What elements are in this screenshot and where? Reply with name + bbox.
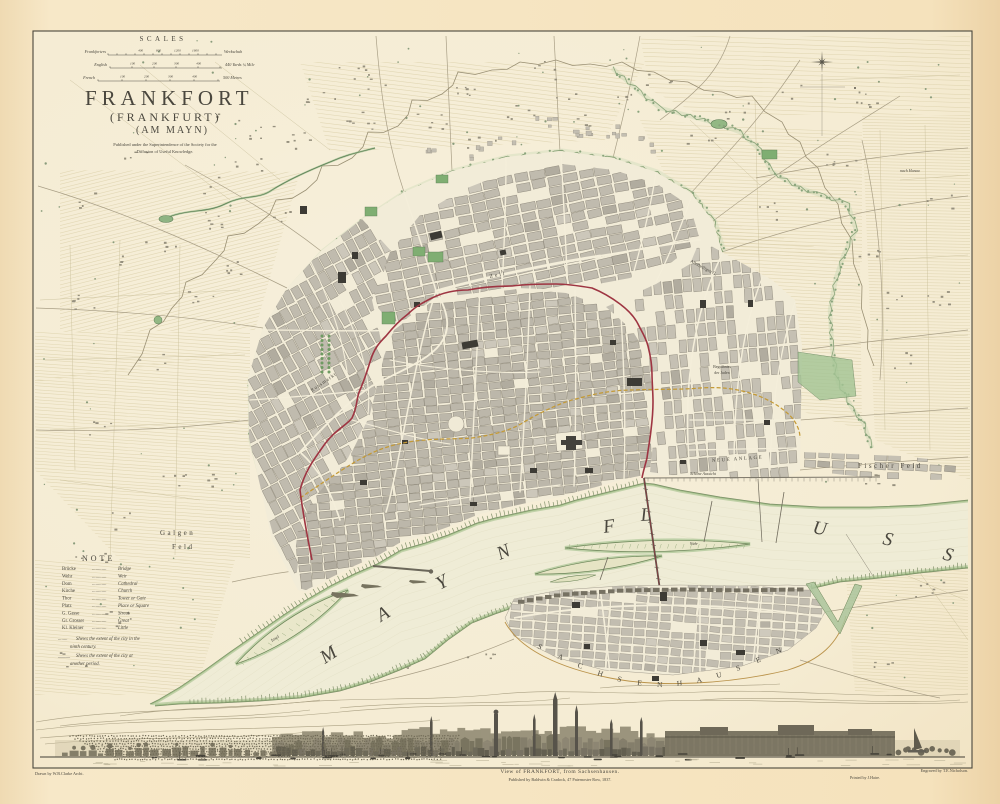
svg-text:............: ............: [92, 626, 106, 631]
svg-text:Street: Street: [118, 611, 130, 616]
svg-text:............: ............: [92, 589, 106, 594]
svg-text:Kl. Kleiner: Kl. Kleiner: [62, 626, 84, 631]
svg-text:Published under the Superinten: Published under the Superintendence of t…: [113, 142, 216, 147]
svg-text:Place or Square: Place or Square: [117, 604, 150, 609]
svg-text:Wehr: Wehr: [62, 574, 73, 579]
svg-text:Kirche: Kirche: [62, 589, 75, 594]
svg-text:Diffusion of Useful Knowledge.: Diffusion of Useful Knowledge.: [137, 149, 194, 154]
svg-text:440 Yards ¼ Mile: 440 Yards ¼ Mile: [225, 62, 255, 67]
svg-text:Shews the extent of the city a: Shews the extent of the city at: [76, 654, 133, 659]
svg-text:Schöne Aussicht: Schöne Aussicht: [690, 471, 717, 476]
svg-text:Gr. Grosser: Gr. Grosser: [62, 619, 85, 624]
svg-text:Thor: Thor: [62, 597, 72, 602]
svg-text:Frankforters: Frankforters: [84, 49, 107, 54]
svg-text:400: 400: [196, 62, 201, 66]
svg-text:Begräbniss: Begräbniss: [713, 364, 731, 369]
svg-text:............: ............: [92, 604, 106, 609]
svg-text:English: English: [93, 62, 107, 67]
svg-text:Cathedral: Cathedral: [118, 582, 138, 587]
svg-text:Shews the extent of the city i: Shews the extent of the city in the: [76, 637, 141, 642]
svg-text:Great: Great: [118, 619, 130, 624]
svg-text:............: ............: [92, 611, 106, 616]
svg-text:............: ............: [92, 582, 106, 587]
svg-text:Tower or Gate: Tower or Gate: [118, 597, 147, 602]
svg-text:............: ............: [92, 574, 106, 579]
svg-text:Brücke: Brücke: [62, 567, 76, 572]
svg-text:............: ............: [92, 597, 106, 602]
svg-text:400: 400: [138, 49, 143, 53]
svg-text:(AM MAYN): (AM MAYN): [136, 125, 209, 136]
svg-text:_____: _____: [57, 654, 71, 659]
svg-text:300: 300: [174, 62, 179, 66]
svg-text:Platz: Platz: [62, 604, 72, 609]
svg-text:ninth century.: ninth century.: [70, 645, 96, 650]
svg-text:SCALES: SCALES: [139, 35, 186, 43]
svg-text:Bridge: Bridge: [118, 567, 132, 572]
svg-text:FRANKFORT: FRANKFORT: [85, 86, 254, 110]
svg-text:200: 200: [152, 62, 157, 66]
svg-text:400: 400: [192, 75, 197, 79]
svg-text:L: L: [639, 504, 652, 526]
svg-text:Wehr: Wehr: [690, 542, 698, 546]
svg-text:500 Metres: 500 Metres: [223, 75, 242, 80]
svg-text:............: ............: [92, 567, 106, 572]
svg-text:Weir: Weir: [118, 574, 127, 579]
svg-text:800: 800: [156, 49, 161, 53]
svg-text:100: 100: [120, 75, 125, 79]
svg-text:Church: Church: [118, 589, 133, 594]
svg-text:1600: 1600: [192, 49, 199, 53]
svg-text:NOTE: NOTE: [82, 554, 115, 563]
svg-text:200: 200: [144, 75, 149, 79]
svg-text:............: ............: [92, 619, 106, 624]
svg-text:Werkschuh: Werkschuh: [224, 49, 242, 54]
svg-text:G. Gasse: G. Gasse: [62, 611, 79, 616]
svg-text:Little: Little: [117, 626, 129, 631]
svg-text:Galgen: Galgen: [160, 529, 195, 537]
svg-text:300: 300: [168, 75, 173, 79]
svg-text:nach Hanau: nach Hanau: [900, 168, 920, 173]
svg-text:........: ........: [58, 637, 68, 642]
svg-text:N: N: [657, 680, 663, 689]
svg-text:100: 100: [130, 62, 135, 66]
svg-text:Fischer Feld: Fischer Feld: [858, 462, 923, 470]
svg-text:Dom: Dom: [62, 582, 72, 587]
svg-text:another period.: another period.: [70, 662, 100, 667]
svg-text:1200: 1200: [174, 49, 181, 53]
svg-text:Feld: Feld: [172, 543, 194, 551]
svg-text:(FRANKFURT): (FRANKFURT): [110, 110, 222, 124]
svg-text:der Juden: der Juden: [714, 370, 729, 375]
svg-text:French: French: [82, 75, 95, 80]
